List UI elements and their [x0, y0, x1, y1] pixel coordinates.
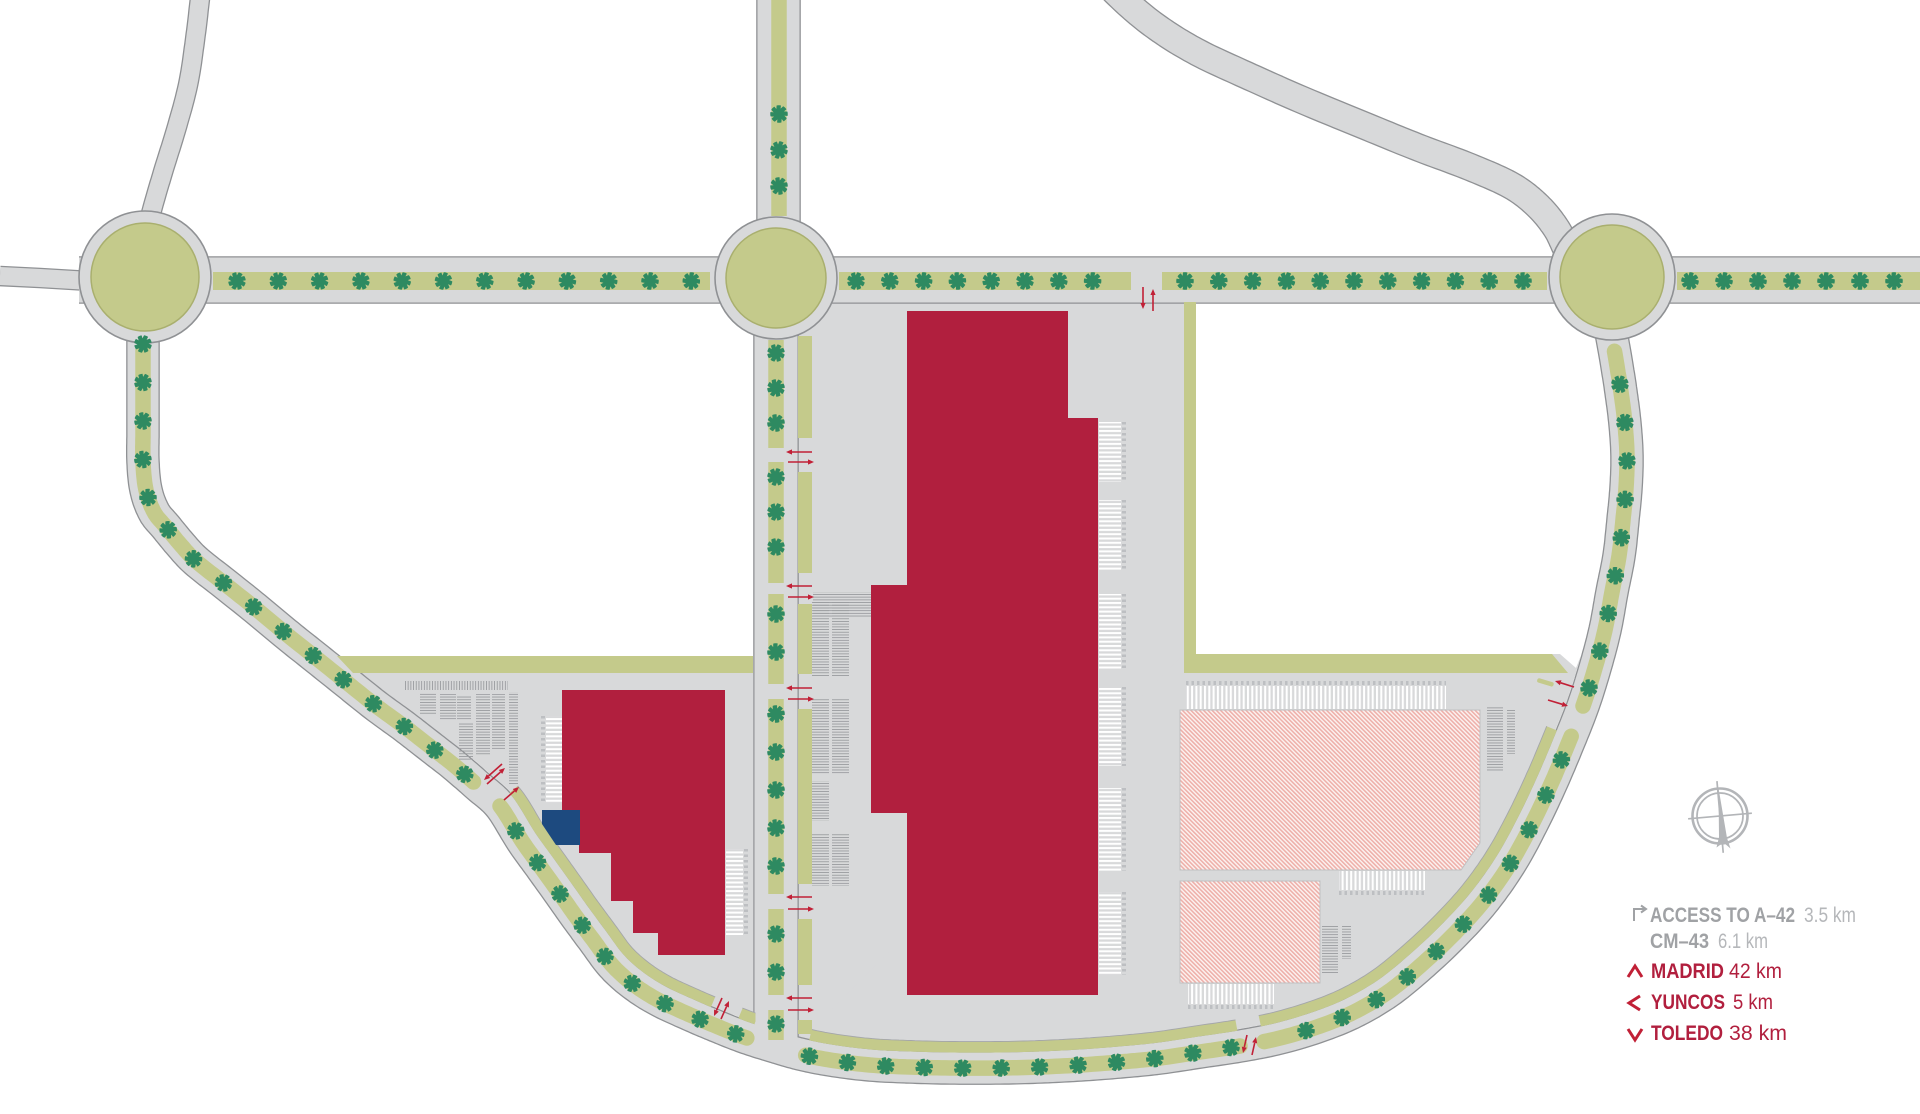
svg-text:YUNCOS: YUNCOS — [1651, 991, 1725, 1014]
svg-text:5 km: 5 km — [1733, 991, 1773, 1014]
svg-text:3.5 km: 3.5 km — [1804, 904, 1856, 927]
svg-text:38 km: 38 km — [1729, 1022, 1787, 1045]
svg-text:TOLEDO: TOLEDO — [1651, 1022, 1723, 1045]
svg-text:MADRID: MADRID — [1651, 960, 1724, 983]
svg-text:42 km: 42 km — [1729, 960, 1782, 983]
svg-text:CM–43: CM–43 — [1650, 930, 1709, 953]
svg-text:ACCESS TO A–42: ACCESS TO A–42 — [1650, 904, 1795, 927]
svg-text:6.1 km: 6.1 km — [1718, 930, 1768, 953]
